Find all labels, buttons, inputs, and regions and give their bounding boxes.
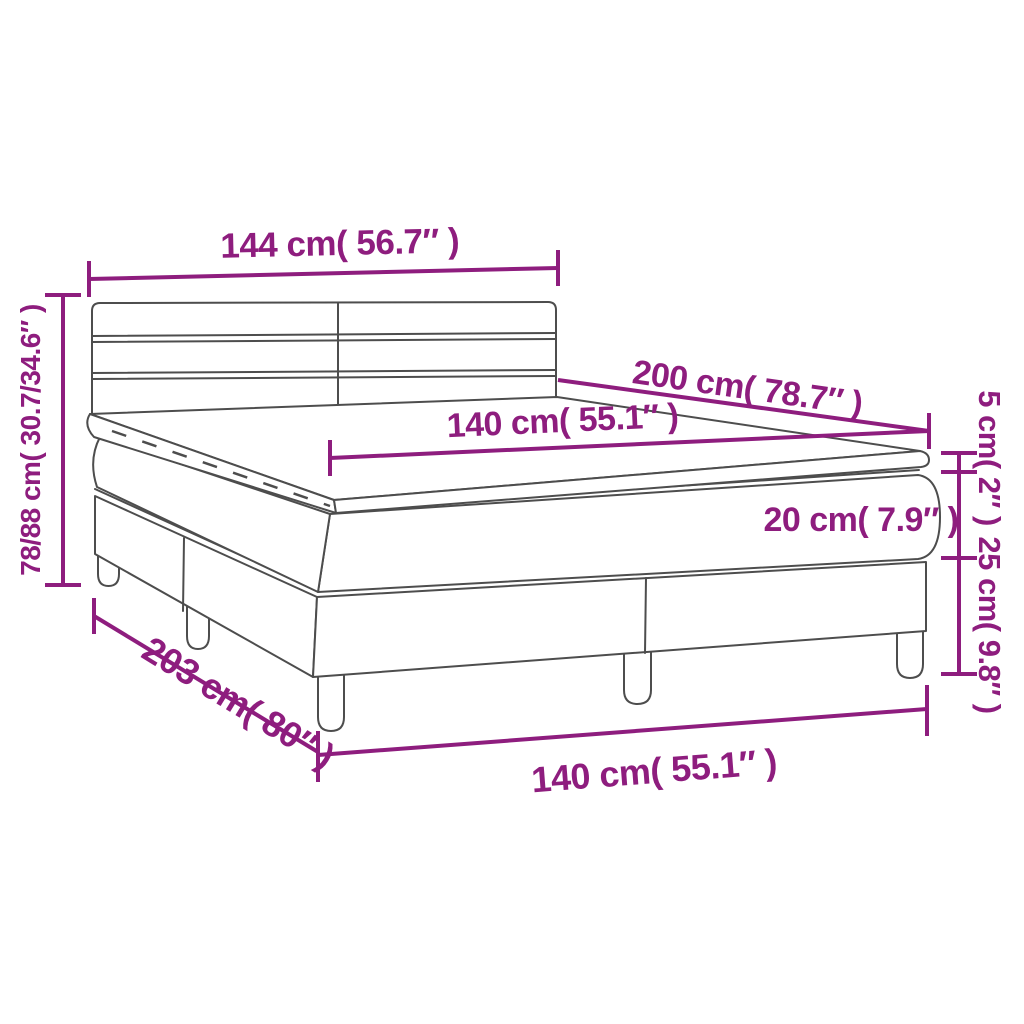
- headboard-width-label: 144 cm( 56.7″ ): [220, 221, 460, 265]
- headboard-width-dimension: 144 cm( 56.7″ ): [89, 221, 558, 297]
- overall-height-label: 78/88 cm( 30.7/34.6″ ): [15, 304, 46, 576]
- base-width-label: 140 cm( 55.1″ ): [530, 741, 778, 801]
- base-front-seam: [645, 578, 646, 653]
- bed-dimension-diagram: 144 cm( 56.7″ ) 78/88 cm( 30.7/34.6″ ) 2…: [0, 0, 1024, 1024]
- layer-heights-dimension: 5 cm( 2″ ) 25 cm( 9.8″ ): [941, 390, 1007, 713]
- base-left-seam: [183, 538, 184, 611]
- overall-height-dimension: 78/88 cm( 30.7/34.6″ ): [15, 295, 81, 585]
- base-width-dimension: 140 cm( 55.1″ ): [318, 685, 927, 800]
- base-height-label: 25 cm( 9.8″ ): [972, 536, 1007, 713]
- topper-thickness-label: 5 cm( 2″ ): [972, 390, 1007, 526]
- diagram-canvas: 144 cm( 56.7″ ) 78/88 cm( 30.7/34.6″ ) 2…: [0, 0, 1024, 1024]
- mattress-thickness-label: 20 cm( 7.9″ ): [764, 501, 959, 539]
